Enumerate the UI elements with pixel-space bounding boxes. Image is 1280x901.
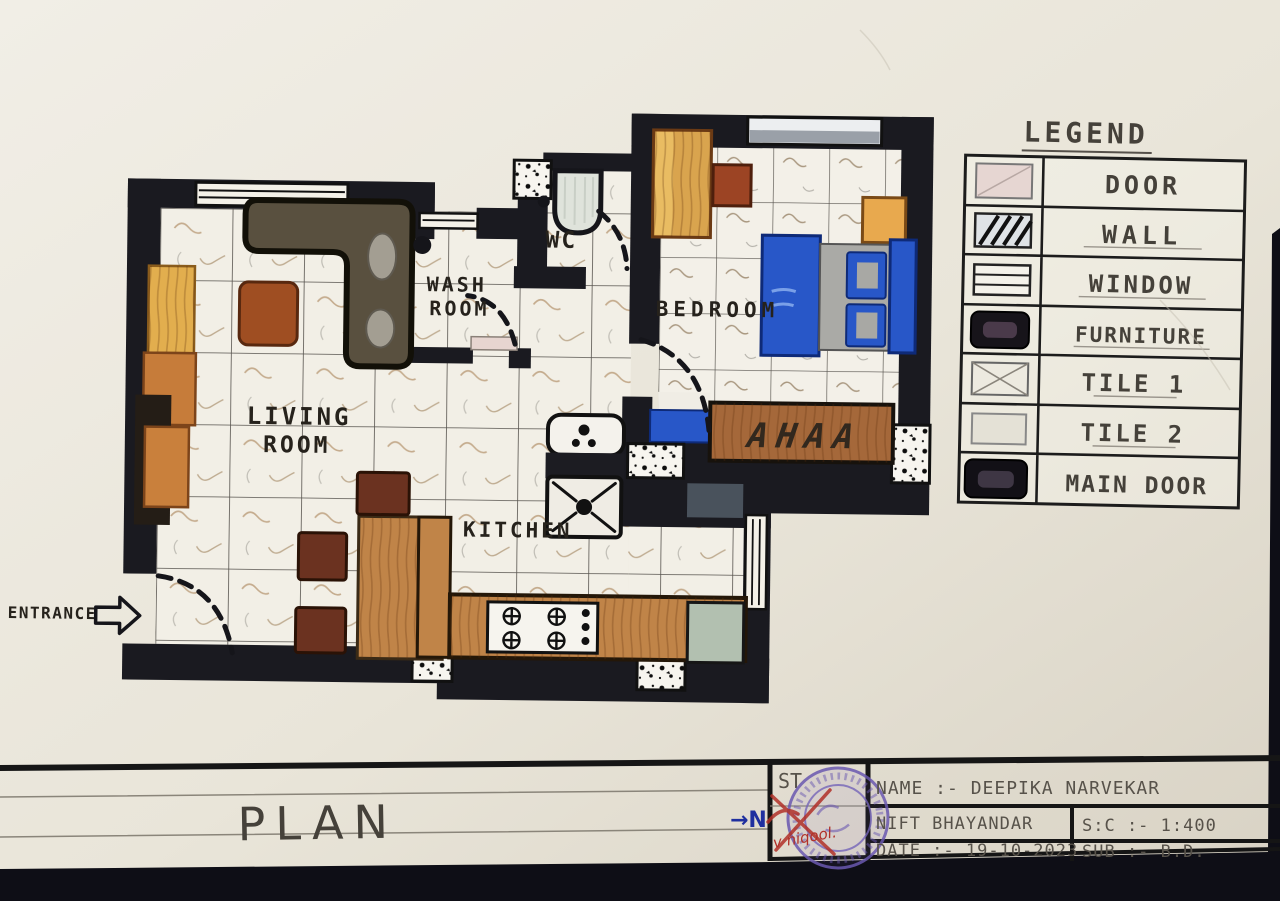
- living-room-label: LIVING: [247, 402, 352, 431]
- washroom-window: [419, 213, 477, 229]
- legend-item-label: FURNITURE: [1075, 322, 1207, 349]
- pillow-center: [857, 262, 878, 288]
- wc-label: WC: [545, 228, 577, 254]
- side-table-brown: [713, 165, 751, 206]
- legend-wall-hatch-swatch: [975, 213, 1032, 247]
- kitchen-label: KITCHEN: [463, 518, 573, 543]
- wash-room-label: ROOM: [429, 296, 489, 321]
- console-grain-marks: AHAA: [741, 417, 868, 457]
- kitchen-counter-arm: [417, 517, 451, 657]
- wood-console: AHAA: [710, 403, 894, 463]
- wash-room-label: WASH: [427, 272, 487, 297]
- bedroom-label: BEDROOM: [656, 297, 780, 323]
- date-field: DATE :- 19-10-2023: [876, 841, 1078, 861]
- speckle-tile-sink: [627, 444, 683, 479]
- wardrobe-grain: [652, 130, 711, 238]
- entrance-label: ENTRANCE: [8, 603, 97, 623]
- bedroom-window: [748, 117, 882, 146]
- legend: LEGEND: [958, 114, 1246, 508]
- bed-blanket-right: [889, 240, 916, 353]
- living-room-label: ROOM: [263, 432, 331, 459]
- sofa-cushion: [366, 309, 394, 347]
- washroom-corner-block: [509, 348, 531, 368]
- legend-furniture-swatch: [971, 311, 1030, 348]
- fridge-green: [687, 602, 744, 663]
- washroom-wall-b: [476, 208, 519, 240]
- legend-item-label: WINDOW: [1088, 270, 1193, 300]
- gas-stove: [487, 602, 598, 653]
- washing-machine: [514, 160, 551, 198]
- subject-field: SUB :- B.D.: [1082, 842, 1206, 862]
- north-arrow-label: →N: [730, 808, 767, 833]
- side-table-orange: [862, 197, 906, 243]
- dining-chair: [298, 533, 347, 581]
- institute-field: NIFT BHAYANDAR: [876, 814, 1033, 834]
- bed: [761, 235, 916, 357]
- dining-chair: [357, 472, 410, 515]
- blue-counter-strip: [650, 410, 710, 443]
- drawing-title: PLAN: [237, 795, 398, 852]
- legend-tile1-swatch: [972, 362, 1029, 395]
- coffee-table: [239, 282, 298, 346]
- legend-window-swatch: [974, 264, 1031, 295]
- speckle-tile-bedroom-right: [891, 425, 930, 483]
- sofa-cushion: [368, 233, 397, 279]
- scale-field: S:C :- 1:400: [1082, 816, 1217, 836]
- name-field: NAME :- DEEPIKA NARVEKAR: [876, 778, 1160, 799]
- counter-slate-top: [687, 483, 743, 518]
- cabinet-orange-2: [144, 427, 189, 508]
- pillow-center: [856, 312, 877, 338]
- legend-item-label: DOOR: [1105, 170, 1182, 201]
- kitchen-window: [745, 515, 767, 609]
- legend-item-label: TILE 2: [1080, 419, 1185, 449]
- bed-blanket-left: [761, 235, 820, 356]
- legend-item-label: TILE 1: [1081, 369, 1186, 399]
- legend-main-door-swatch: [964, 459, 1027, 498]
- photo-of-floor-plan: AHAA LIVING ROOM WASH ROOM WC BEDROOM KI…: [0, 0, 1280, 901]
- dining-chair: [295, 608, 346, 654]
- legend-item-label: MAIN DOOR: [1065, 471, 1208, 500]
- toilet: [554, 171, 601, 234]
- cabinet-grain: [148, 266, 195, 354]
- wc-bottom-wall: [514, 266, 586, 289]
- legend-tile2-swatch: [972, 413, 1027, 444]
- legend-title: LEGEND: [1023, 115, 1149, 151]
- washroom-door-leaf: [471, 337, 517, 351]
- legend-door-swatch: [976, 163, 1033, 198]
- legend-item-label: WALL: [1102, 220, 1183, 251]
- stove-knobs: [581, 609, 589, 645]
